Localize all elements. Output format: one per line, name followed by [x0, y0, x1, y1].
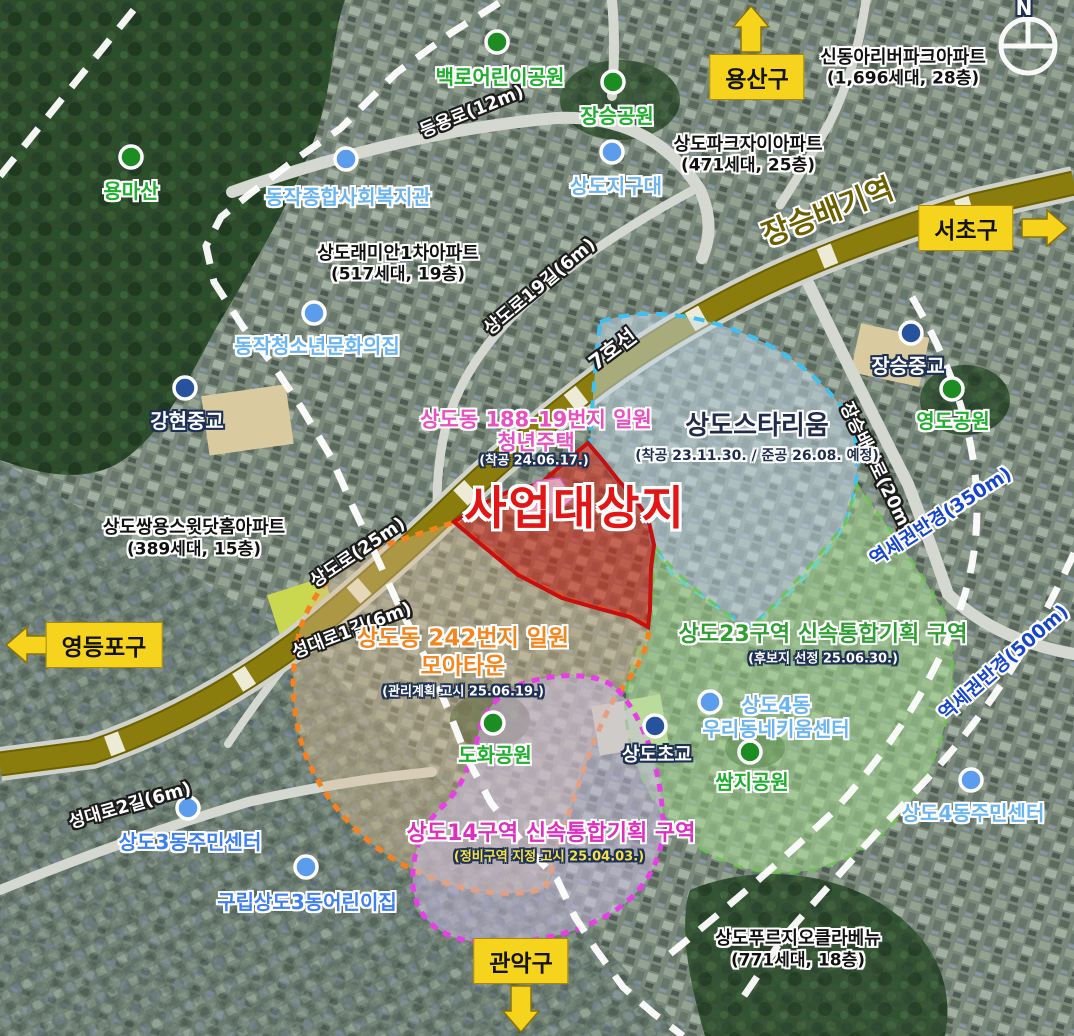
sangdo-elementary-dot [644, 715, 666, 737]
sd4-community-center-dot [960, 769, 982, 791]
ganghyeon-school-dot [174, 377, 196, 399]
yongma-mountain-dot [120, 146, 142, 168]
satellite-planning-map: N 용산구 서초구 영등포구 관악구 장승배기역 7호선 등용로(12m) 상도… [0, 0, 1074, 1036]
ganghyeon-schoolyard [201, 384, 294, 455]
youth-culture-center-dot [303, 302, 325, 324]
welfare-center-dot [335, 148, 357, 170]
jangseung-park-dot [602, 71, 624, 93]
baekro-park-dot [486, 31, 508, 53]
yeongdo-park-greenery [920, 365, 1010, 435]
yeongdo-park-dot [941, 378, 963, 400]
ssamji-park-dot [739, 741, 761, 763]
kium-center-dot [699, 691, 721, 713]
dohwa-park-dot [482, 712, 504, 734]
jangseungjung-school-dot [900, 322, 922, 344]
sd3-community-center-dot [177, 797, 199, 819]
map-graphics [0, 0, 1074, 1036]
police-substation-dot [601, 141, 623, 163]
sd3-daycare-dot [295, 856, 317, 878]
